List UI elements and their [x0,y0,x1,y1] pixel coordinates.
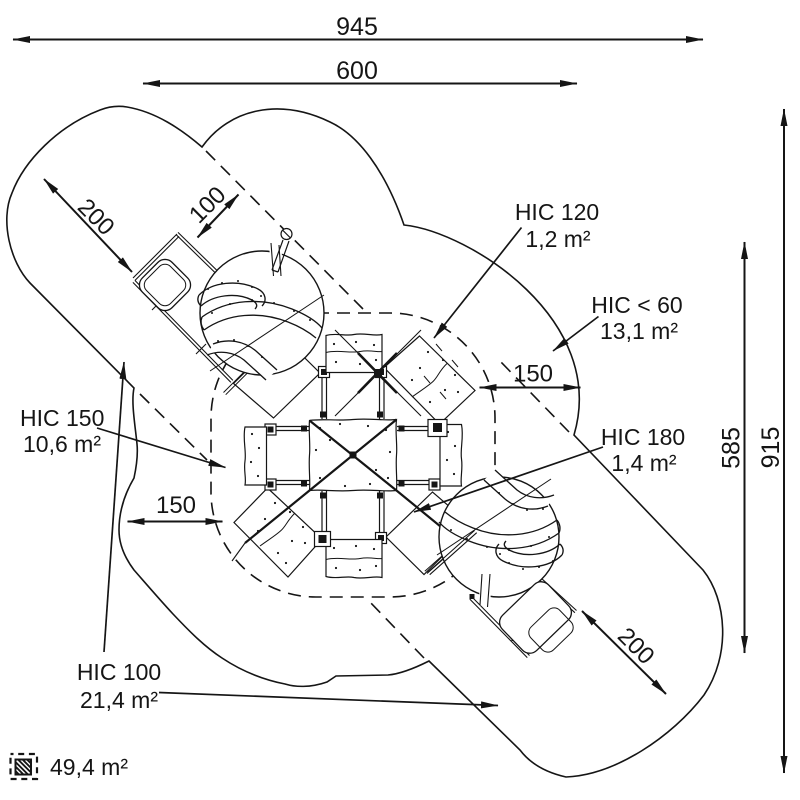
svg-text:150: 150 [513,361,553,388]
svg-text:585: 585 [718,427,746,469]
svg-text:200: 200 [72,193,119,240]
svg-text:10,6 m²: 10,6 m² [23,431,101,457]
svg-text:21,4 m²: 21,4 m² [80,687,158,713]
svg-text:HIC 100: HIC 100 [77,659,161,685]
svg-text:13,1 m²: 13,1 m² [600,318,678,344]
svg-text:100: 100 [184,181,231,228]
svg-text:HIC 180: HIC 180 [601,424,685,450]
svg-text:1,2 m²: 1,2 m² [525,226,591,252]
svg-text:150: 150 [156,492,196,519]
svg-text:HIC 150: HIC 150 [20,405,104,431]
svg-text:HIC < 60: HIC < 60 [591,292,682,318]
svg-text:600: 600 [336,57,378,85]
svg-text:HIC 120: HIC 120 [515,199,599,225]
svg-text:945: 945 [336,13,378,41]
svg-text:915: 915 [757,427,785,469]
svg-text:49,4 m²: 49,4 m² [50,754,128,780]
svg-text:200: 200 [612,622,659,669]
svg-text:1,4 m²: 1,4 m² [611,450,677,476]
